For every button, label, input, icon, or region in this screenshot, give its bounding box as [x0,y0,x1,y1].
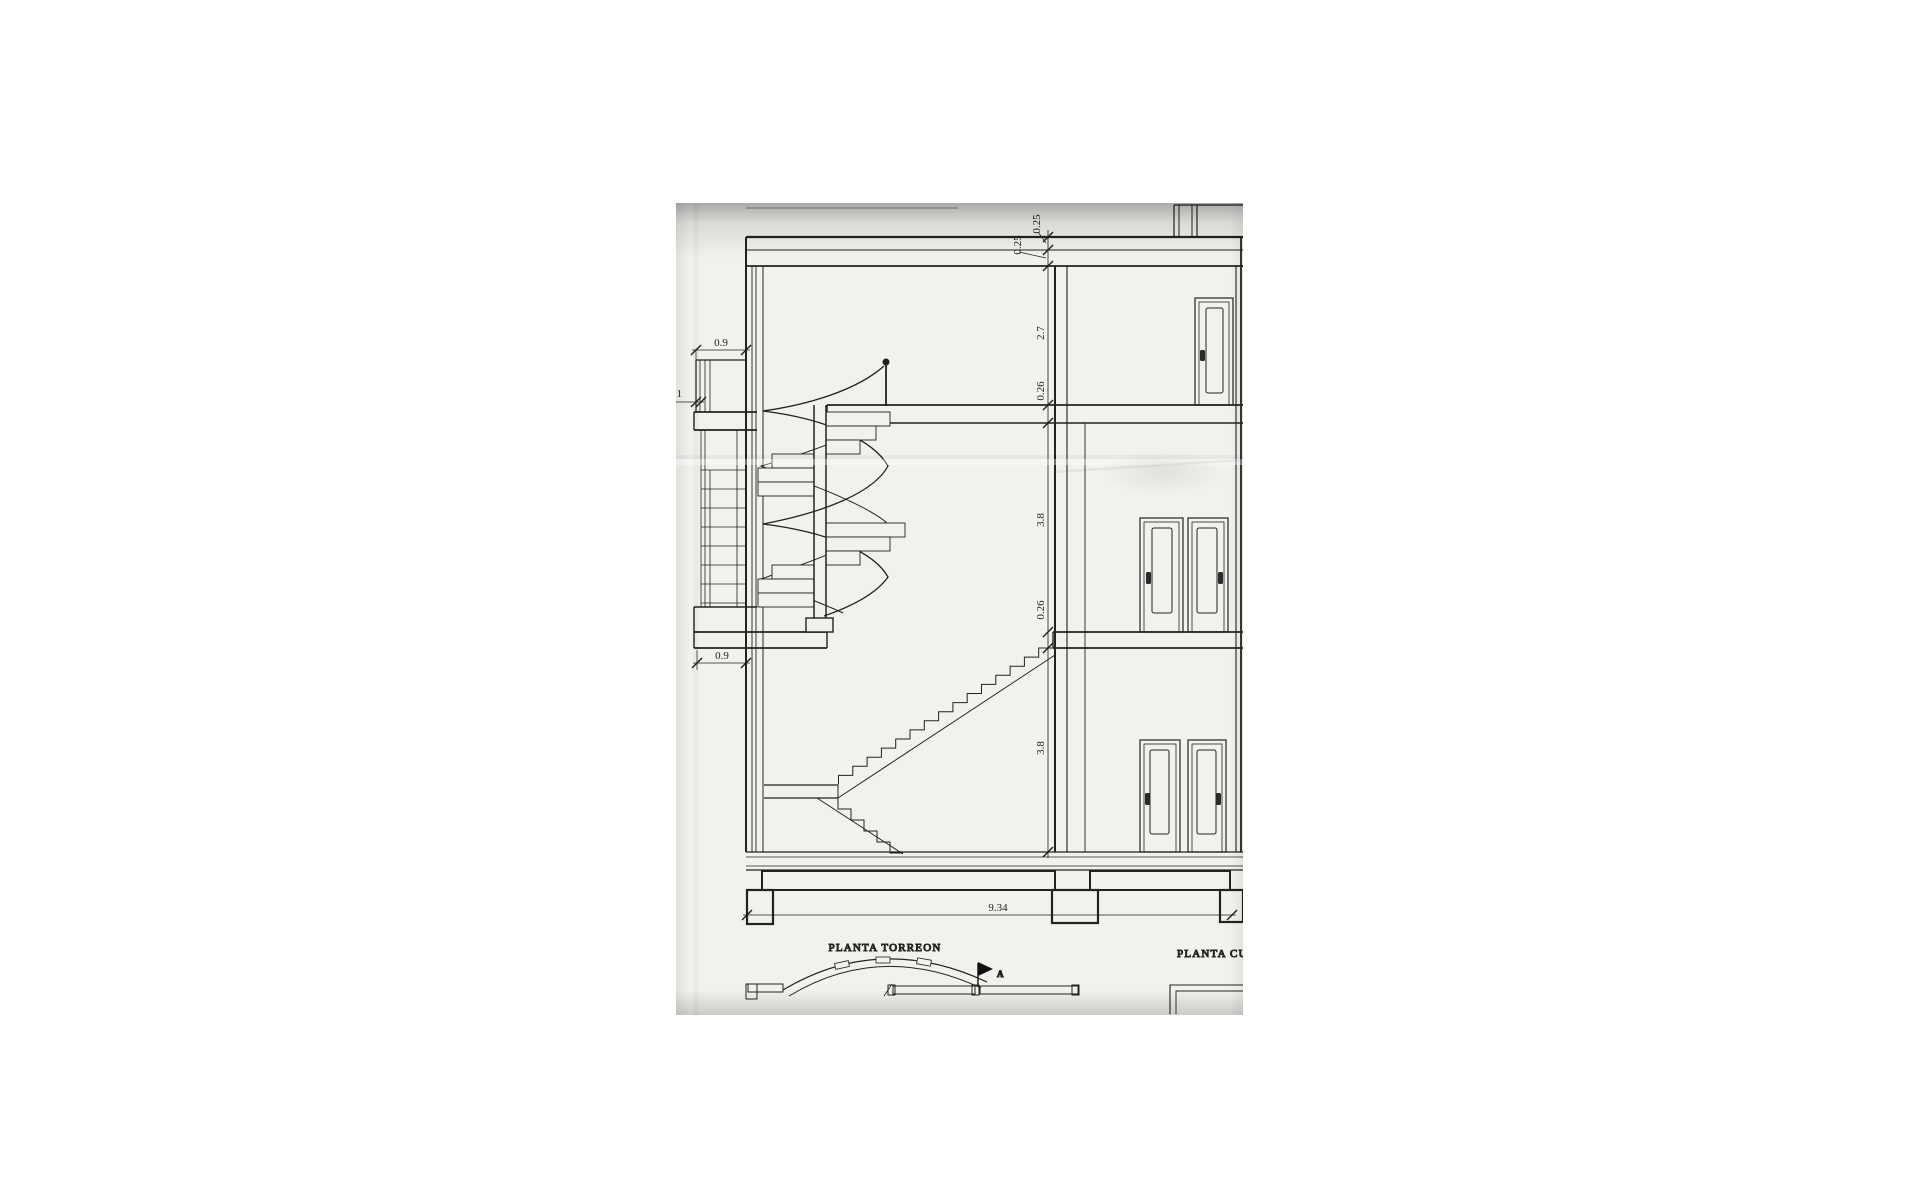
dim-upper-slab: 0.26 [1035,381,1047,401]
dim-mid-floor: 3.8 [1035,513,1047,527]
vertical-fold-crease [693,203,699,1015]
dim-ground-floor: 3.8 [1035,741,1047,755]
dim-overall-width-label: 9.34 [988,902,1008,914]
door-handle [1146,572,1151,584]
door-handle [1216,793,1221,805]
paper-sheet [676,203,1243,1015]
scanned-architectural-drawing: 0.25 0.25 2.7 0.26 3.8 0.26 3.8 0.9 .1 [0,0,1920,1200]
section-drawing-sheet: 0.25 0.25 2.7 0.26 3.8 0.26 3.8 0.9 .1 [0,0,1920,1200]
fold-dimple [1103,448,1223,496]
dim-lower-slab: 0.26 [1035,600,1047,620]
section-marker-letter: A [997,969,1004,979]
plan-title-left: PLANTA TORREON [829,942,942,954]
dim-top-floor: 2.7 [1035,326,1047,340]
door-handle [1145,793,1150,805]
dim-balcony-bottom-label: 0.9 [715,650,729,662]
door-handle [1200,350,1205,361]
door-handle [1218,572,1223,584]
dim-balcony-top-label: 0.9 [714,337,728,349]
